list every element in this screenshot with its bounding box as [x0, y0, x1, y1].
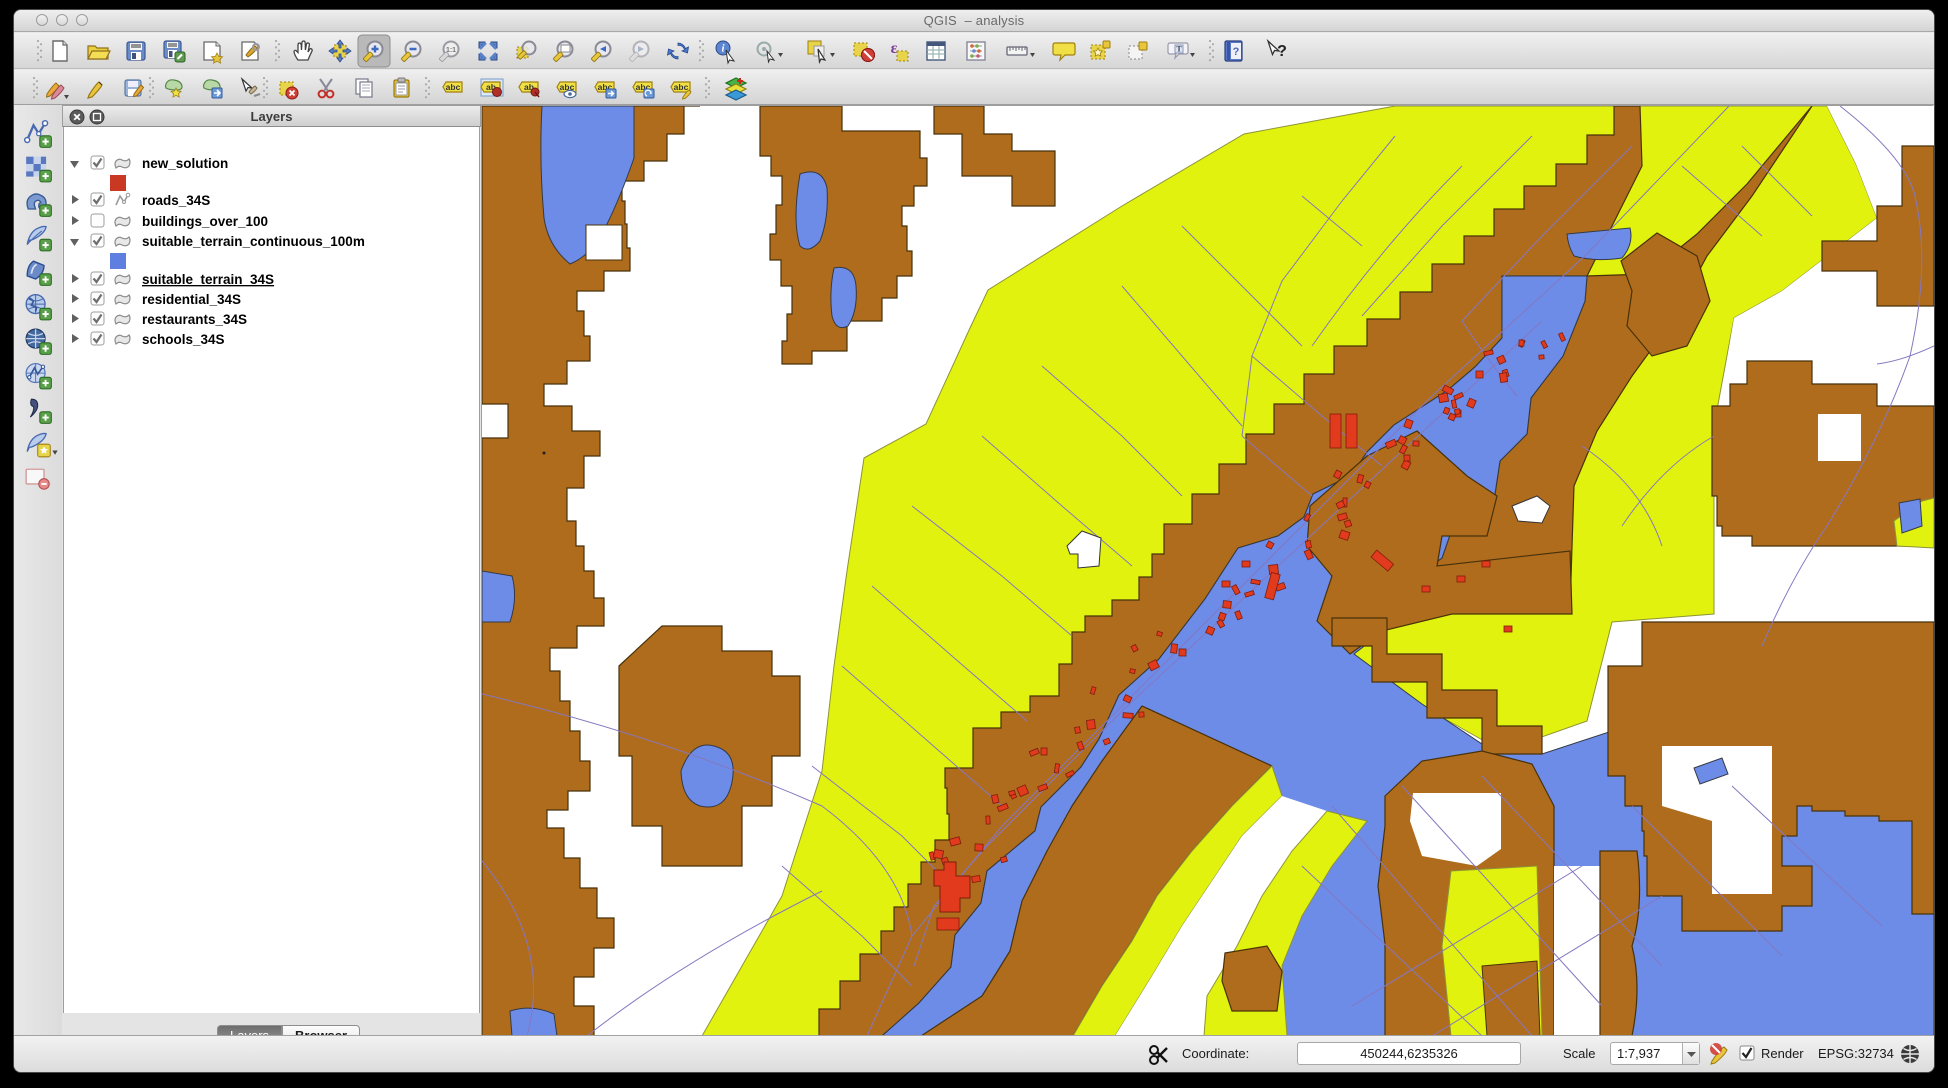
svg-text:abc: abc	[446, 82, 461, 92]
svg-text:schools_34S: schools_34S	[142, 332, 225, 347]
svg-text:T: T	[1176, 45, 1182, 54]
svg-text:?: ?	[1277, 43, 1287, 60]
svg-text:ε: ε	[891, 40, 898, 57]
svg-text:suitable_terrain_continuous_10: suitable_terrain_continuous_100m	[142, 234, 365, 249]
svg-text:suitable_terrain_34S: suitable_terrain_34S	[142, 272, 274, 287]
svg-text:restaurants_34S: restaurants_34S	[142, 312, 247, 327]
svg-text:roads_34S: roads_34S	[142, 193, 210, 208]
svg-text:buildings_over_100: buildings_over_100	[142, 214, 268, 229]
svg-text:?: ?	[1233, 46, 1240, 58]
svg-text:new_solution: new_solution	[142, 156, 228, 171]
svg-text:abc: abc	[674, 82, 689, 92]
svg-text:residential_34S: residential_34S	[142, 292, 241, 307]
